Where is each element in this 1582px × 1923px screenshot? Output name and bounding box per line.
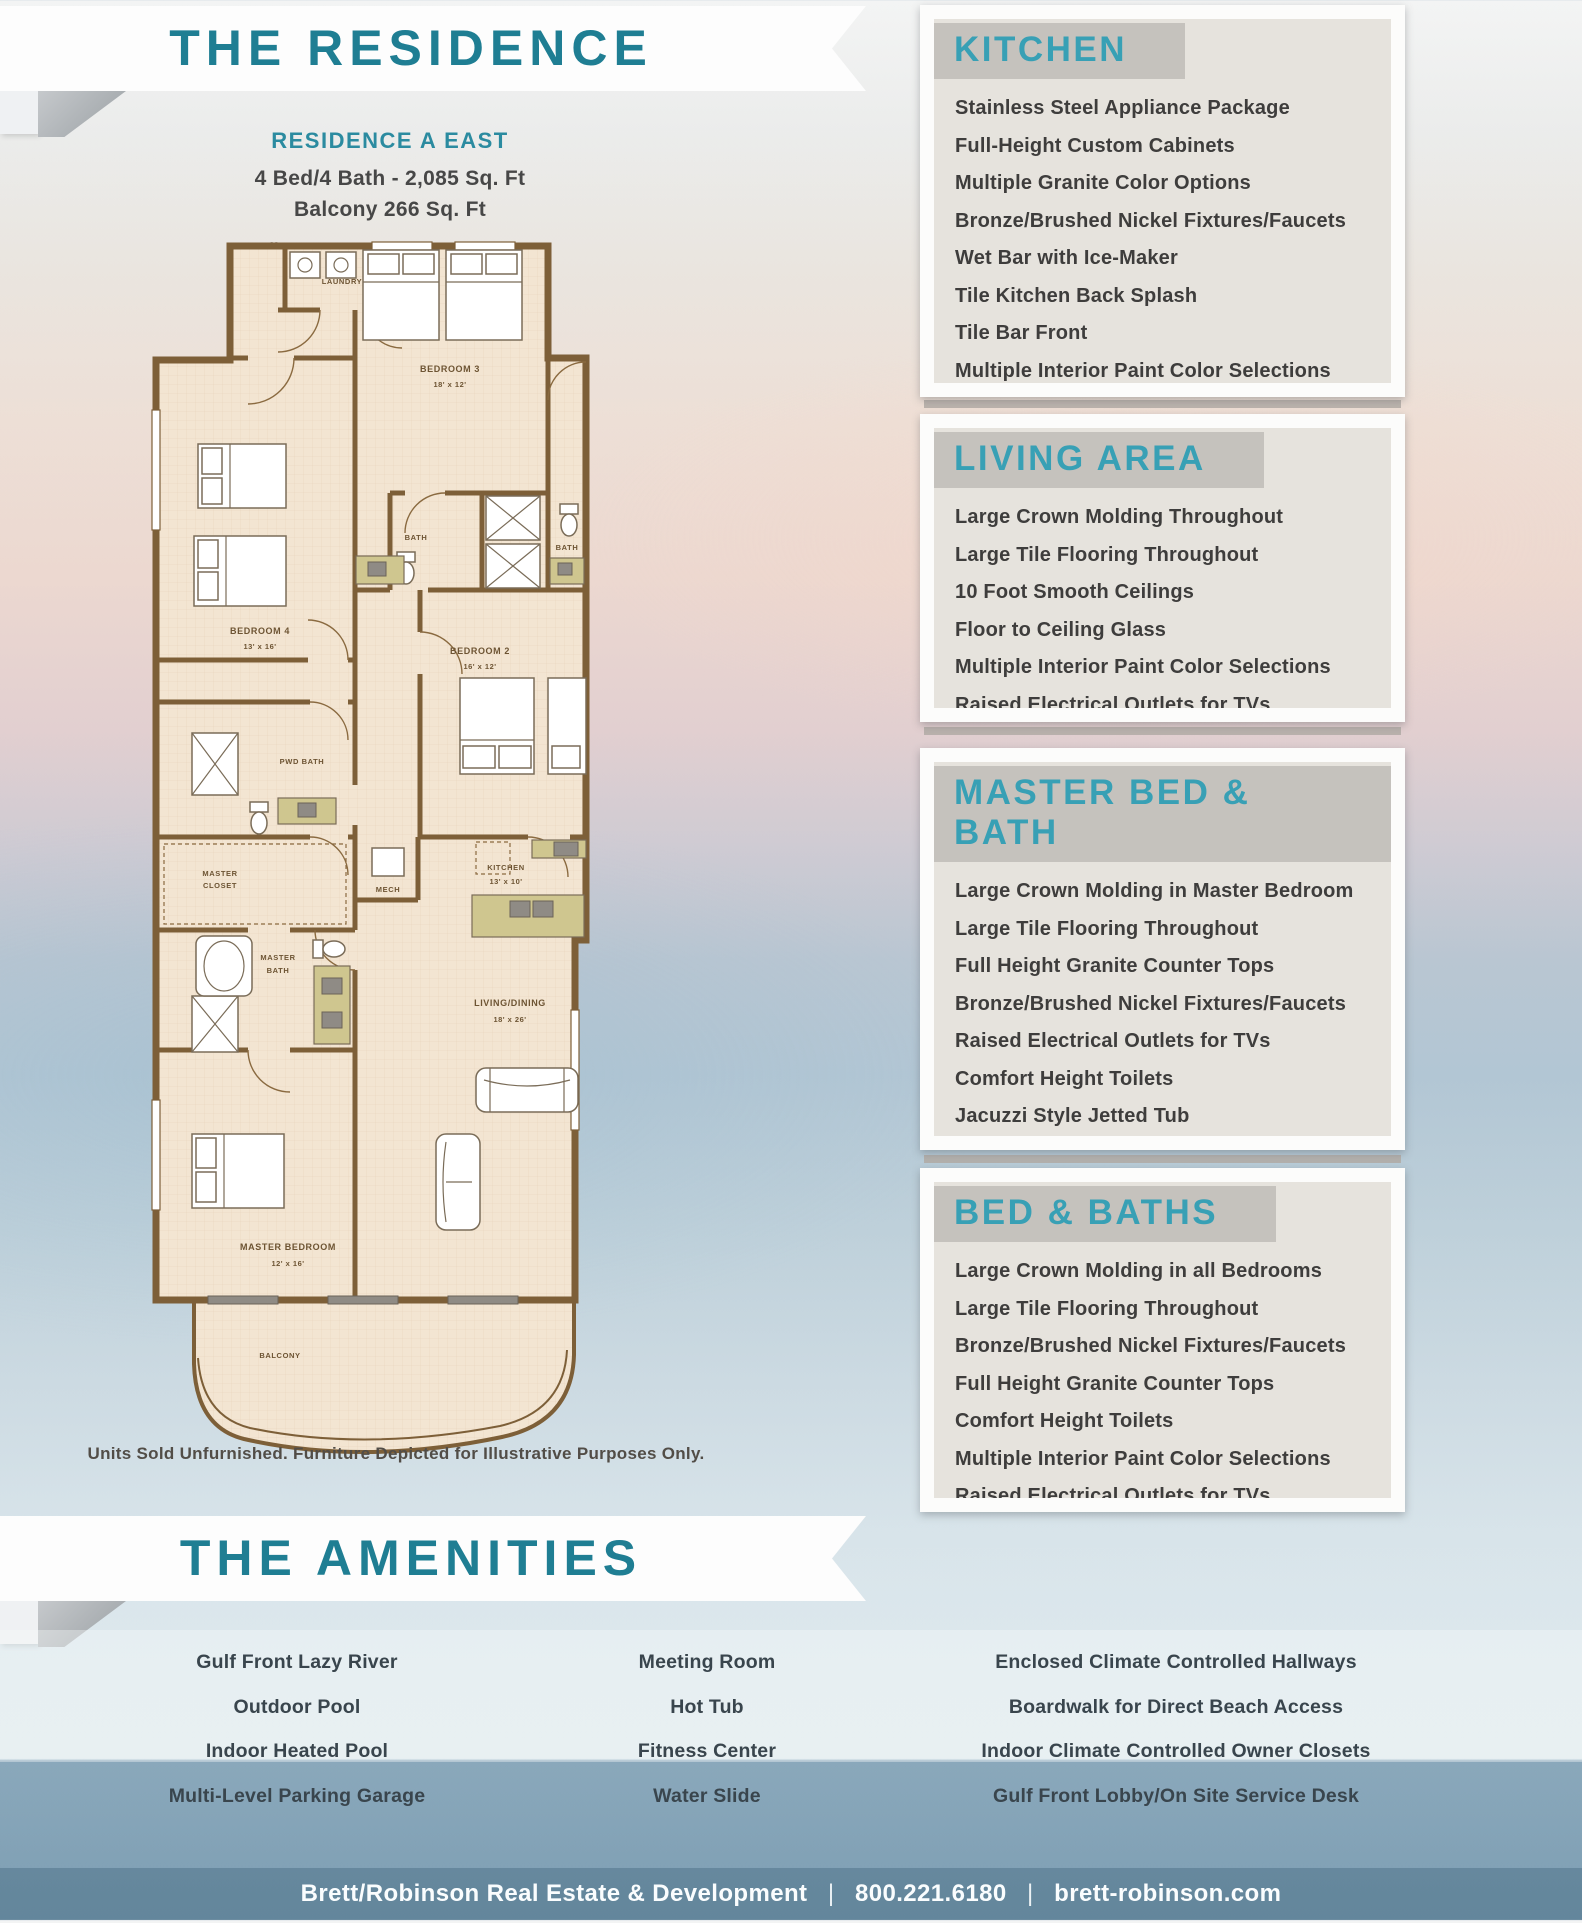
amenities-column-1: Gulf Front Lazy RiverOutdoor PoolIndoor …: [57, 1640, 537, 1818]
amenity-item: Multi-Level Parking Garage: [57, 1774, 537, 1819]
vanity-icon: [550, 558, 584, 584]
amenity-item: Indoor Climate Controlled Owner Closets: [936, 1729, 1416, 1774]
feature-item: Comfort Height Toilets: [955, 1061, 1391, 1099]
amenity-item: Water Slide: [467, 1774, 947, 1819]
toilet-icon: [313, 940, 345, 958]
amenity-item: Boardwalk for Direct Beach Access: [936, 1685, 1416, 1730]
amenity-item: Gulf Front Lazy River: [57, 1640, 537, 1685]
room-label-pwd-bath: PWD BATH: [280, 757, 325, 766]
feature-item: Multiple Interior Paint Color Selections: [955, 1441, 1391, 1479]
room-label-laundry: LAUNDRY: [322, 277, 363, 286]
feature-item: Large Tile Flooring Throughout: [955, 537, 1391, 575]
footer-company: Brett/Robinson Real Estate & Development: [301, 1880, 808, 1907]
feature-item: Multiple Granite Color Options: [955, 165, 1391, 203]
section-header-bar: KITCHEN: [934, 23, 1185, 79]
feature-item: Jacuzzi Style Jetted Tub: [955, 1098, 1391, 1136]
sliding-door-icon: [448, 1296, 518, 1304]
room-label-bath2: BATH: [556, 543, 579, 552]
amenity-item: Outdoor Pool: [57, 1685, 537, 1730]
feature-item: Bronze/Brushed Nickel Fixtures/Faucets: [955, 203, 1391, 241]
room-label-master-bath-2: BATH: [267, 966, 290, 975]
amenities-banner-title: THE AMENITIES: [180, 1530, 642, 1586]
footer-phone: 800.221.6180: [855, 1880, 1007, 1907]
shower-icon: [192, 733, 238, 795]
amenities-column-3: Enclosed Climate Controlled HallwaysBoar…: [936, 1640, 1416, 1818]
section-title-kitchen: KITCHEN: [954, 30, 1127, 70]
amenity-item: Enclosed Climate Controlled Hallways: [936, 1640, 1416, 1685]
toilet-icon: [560, 504, 578, 536]
tub-icon: [196, 936, 252, 996]
section-box-bed-baths: BED & BATHS Large Crown Molding in all B…: [920, 1168, 1405, 1512]
room-label-bath1: BATH: [405, 533, 428, 542]
residence-banner: THE RESIDENCE: [0, 6, 866, 91]
feature-item: Comfort Height Toilets: [955, 1403, 1391, 1441]
feature-item: Multiple Interior Paint Color Selections: [955, 1136, 1391, 1137]
feature-item: Large Crown Molding Throughout: [955, 499, 1391, 537]
room-dims-kitchen: 13' x 10': [489, 877, 522, 886]
room-label-master-closet-2: CLOSET: [203, 881, 237, 890]
feature-item: 10 Foot Smooth Ceilings: [955, 574, 1391, 612]
amenity-item: Fitness Center: [467, 1729, 947, 1774]
shower-icon: [192, 996, 238, 1052]
feature-item: Full Height Granite Counter Tops: [955, 1366, 1391, 1404]
feature-item: Full-Height Custom Cabinets: [955, 128, 1391, 166]
section-list-kitchen: Stainless Steel Appliance PackageFull-He…: [934, 90, 1391, 383]
room-label-master-bedroom: MASTER BEDROOM: [240, 1242, 336, 1252]
section-list-bed-baths: Large Crown Molding in all BedroomsLarge…: [934, 1253, 1391, 1498]
residence-title-block: RESIDENCE A EAST 4 Bed/4 Bath - 2,085 Sq…: [90, 128, 690, 257]
feature-item: Multiple Interior Paint Color Selections: [955, 649, 1391, 687]
section-box-living-area: LIVING AREA Large Crown Molding Througho…: [920, 414, 1405, 722]
feature-item: Large Crown Molding in all Bedrooms: [955, 1253, 1391, 1291]
floor-plan: LAUNDRY BEDROOM 3 18' x 12' BATH BATH BE…: [150, 240, 590, 1465]
box-connector: [924, 1155, 1401, 1163]
feature-item: Bronze/Brushed Nickel Fixtures/Faucets: [955, 986, 1391, 1024]
amenity-item: Gulf Front Lobby/On Site Service Desk: [936, 1774, 1416, 1819]
section-header-bar: LIVING AREA: [934, 432, 1264, 488]
amenity-item: Hot Tub: [467, 1685, 947, 1730]
vanity-icon: [356, 556, 404, 584]
section-list-living-area: Large Crown Molding ThroughoutLarge Tile…: [934, 499, 1391, 708]
room-label-bedroom2: BEDROOM 2: [450, 646, 510, 656]
sliding-door-icon: [328, 1296, 398, 1304]
section-box-kitchen: KITCHEN Stainless Steel Appliance Packag…: [920, 5, 1405, 397]
room-label-master-closet-1: MASTER: [202, 869, 237, 878]
toilet-icon: [250, 802, 268, 834]
shower-icon: [486, 544, 540, 588]
room-label-balcony: BALCONY: [259, 1351, 300, 1360]
floorplan-floor: [156, 246, 586, 1452]
feature-item: Raised Electrical Outlets for TVs: [955, 1023, 1391, 1061]
feature-item: Large Crown Molding in Master Bedroom: [955, 873, 1391, 911]
room-dims-bedroom4: 13' x 16': [243, 642, 276, 651]
residence-banner-title: THE RESIDENCE: [169, 20, 653, 76]
feature-item: Tile Bar Front: [955, 315, 1391, 353]
mech-unit-icon: [372, 848, 404, 876]
feature-item: Large Tile Flooring Throughout: [955, 911, 1391, 949]
washer-icon: [290, 252, 320, 278]
feature-item: Stainless Steel Appliance Package: [955, 90, 1391, 128]
room-label-bedroom4: BEDROOM 4: [230, 626, 290, 636]
section-title-master-bed-bath: MASTER BED & BATH: [954, 773, 1333, 853]
amenity-item: Meeting Room: [467, 1640, 947, 1685]
bed-icon: [192, 1134, 284, 1208]
sliding-door-icon: [208, 1296, 278, 1304]
footer-bar: Brett/Robinson Real Estate & Development…: [0, 1868, 1582, 1920]
residence-name: RESIDENCE A EAST: [90, 128, 690, 154]
feature-item: Floor to Ceiling Glass: [955, 612, 1391, 650]
room-label-master-bath-1: MASTER: [260, 953, 295, 962]
box-connector: [924, 727, 1401, 735]
feature-item: Multiple Interior Paint Color Selections: [955, 353, 1391, 384]
floorplan-note: Units Sold Unfurnished. Furniture Depict…: [0, 1444, 792, 1464]
room-dims-bedroom2: 16' x 12': [463, 662, 496, 671]
room-label-kitchen: KITCHEN: [487, 863, 525, 872]
section-title-living-area: LIVING AREA: [954, 439, 1206, 479]
vanity-icon: [314, 966, 350, 1044]
dryer-icon: [326, 252, 356, 278]
feature-item: Bronze/Brushed Nickel Fixtures/Faucets: [955, 1328, 1391, 1366]
chair-icon: [436, 1134, 480, 1230]
amenities-column-2: Meeting RoomHot TubFitness CenterWater S…: [467, 1640, 947, 1818]
room-label-mech: MECH: [376, 885, 400, 894]
residence-spec-line2: Balcony 266 Sq. Ft: [90, 198, 690, 222]
section-title-bed-baths: BED & BATHS: [954, 1193, 1218, 1233]
footer-website: brett-robinson.com: [1054, 1880, 1281, 1907]
section-header-bar: MASTER BED & BATH: [934, 766, 1391, 862]
residence-spec-line1: 4 Bed/4 Bath - 2,085 Sq. Ft: [90, 167, 690, 191]
room-label-living-dining: LIVING/DINING: [474, 998, 546, 1008]
room-dims-master-bedroom: 12' x 16': [271, 1259, 304, 1268]
footer-separator: |: [828, 1880, 835, 1907]
amenities-banner: THE AMENITIES: [0, 1516, 866, 1601]
sofa-icon: [476, 1068, 578, 1112]
room-dims-bedroom3: 18' x 12': [433, 380, 466, 389]
section-box-master-bed-bath: MASTER BED & BATH Large Crown Molding in…: [920, 748, 1405, 1150]
feature-item: Large Tile Flooring Throughout: [955, 1291, 1391, 1329]
footer-separator: |: [1027, 1880, 1034, 1907]
shower-icon: [486, 496, 540, 540]
amenity-item: Indoor Heated Pool: [57, 1729, 537, 1774]
feature-item: Wet Bar with Ice-Maker: [955, 240, 1391, 278]
box-connector: [924, 400, 1401, 408]
feature-item: Full Height Granite Counter Tops: [955, 948, 1391, 986]
room-label-bedroom3: BEDROOM 3: [420, 364, 480, 374]
room-dims-living-dining: 18' x 26': [493, 1015, 526, 1024]
feature-item: Raised Electrical Outlets for TVs: [955, 1478, 1391, 1498]
feature-item: Tile Kitchen Back Splash: [955, 278, 1391, 316]
section-header-bar: BED & BATHS: [934, 1186, 1276, 1242]
section-list-master-bed-bath: Large Crown Molding in Master BedroomLar…: [934, 873, 1391, 1136]
vanity-icon: [278, 798, 336, 824]
feature-item: Raised Electrical Outlets for TVs: [955, 687, 1391, 709]
